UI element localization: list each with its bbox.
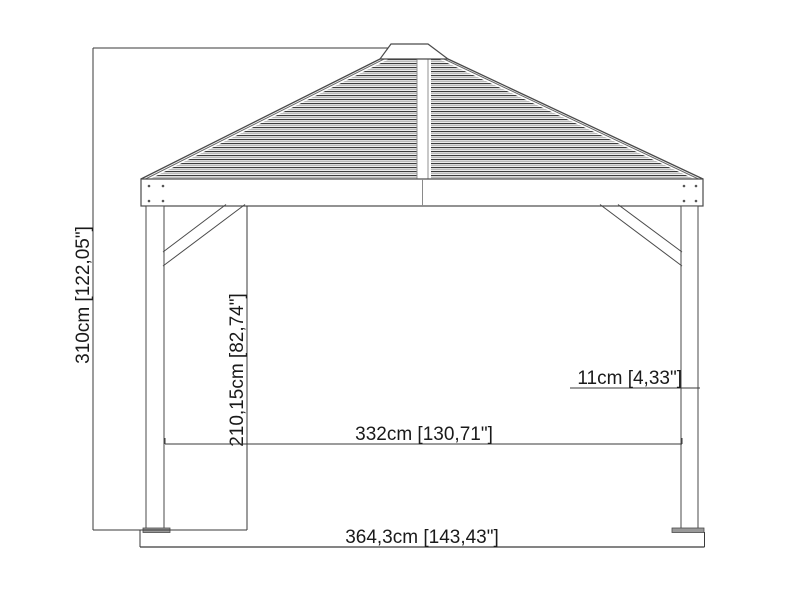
screw-dot [162, 200, 165, 203]
gazebo-elevation-svg: 310cm [122,05"] 210,15cm [82,74"] 11cm [… [0, 0, 800, 600]
roof-ridge-strip [417, 59, 428, 179]
dim-inner-width-label: 332cm [130,71"] [355, 424, 493, 445]
screw-dot [148, 185, 151, 188]
screw-dot [695, 200, 698, 203]
left-post [146, 206, 164, 529]
right-base-plate [672, 528, 704, 533]
screw-dot [695, 185, 698, 188]
dim-post-width-label: 11cm [4,33"] [577, 368, 682, 389]
technical-drawing: 310cm [122,05"] 210,15cm [82,74"] 11cm [… [0, 0, 800, 600]
right-post [681, 206, 698, 529]
screw-dot [162, 185, 165, 188]
screw-dot [683, 200, 686, 203]
screw-dot [148, 200, 151, 203]
dim-clear-height-label: 210,15cm [82,74"] [227, 293, 248, 447]
dim-total-height-label: 310cm [122,05"] [73, 226, 94, 364]
dim-total-width-label: 364,3cm [143,43"] [345, 527, 499, 548]
screw-dot [683, 185, 686, 188]
